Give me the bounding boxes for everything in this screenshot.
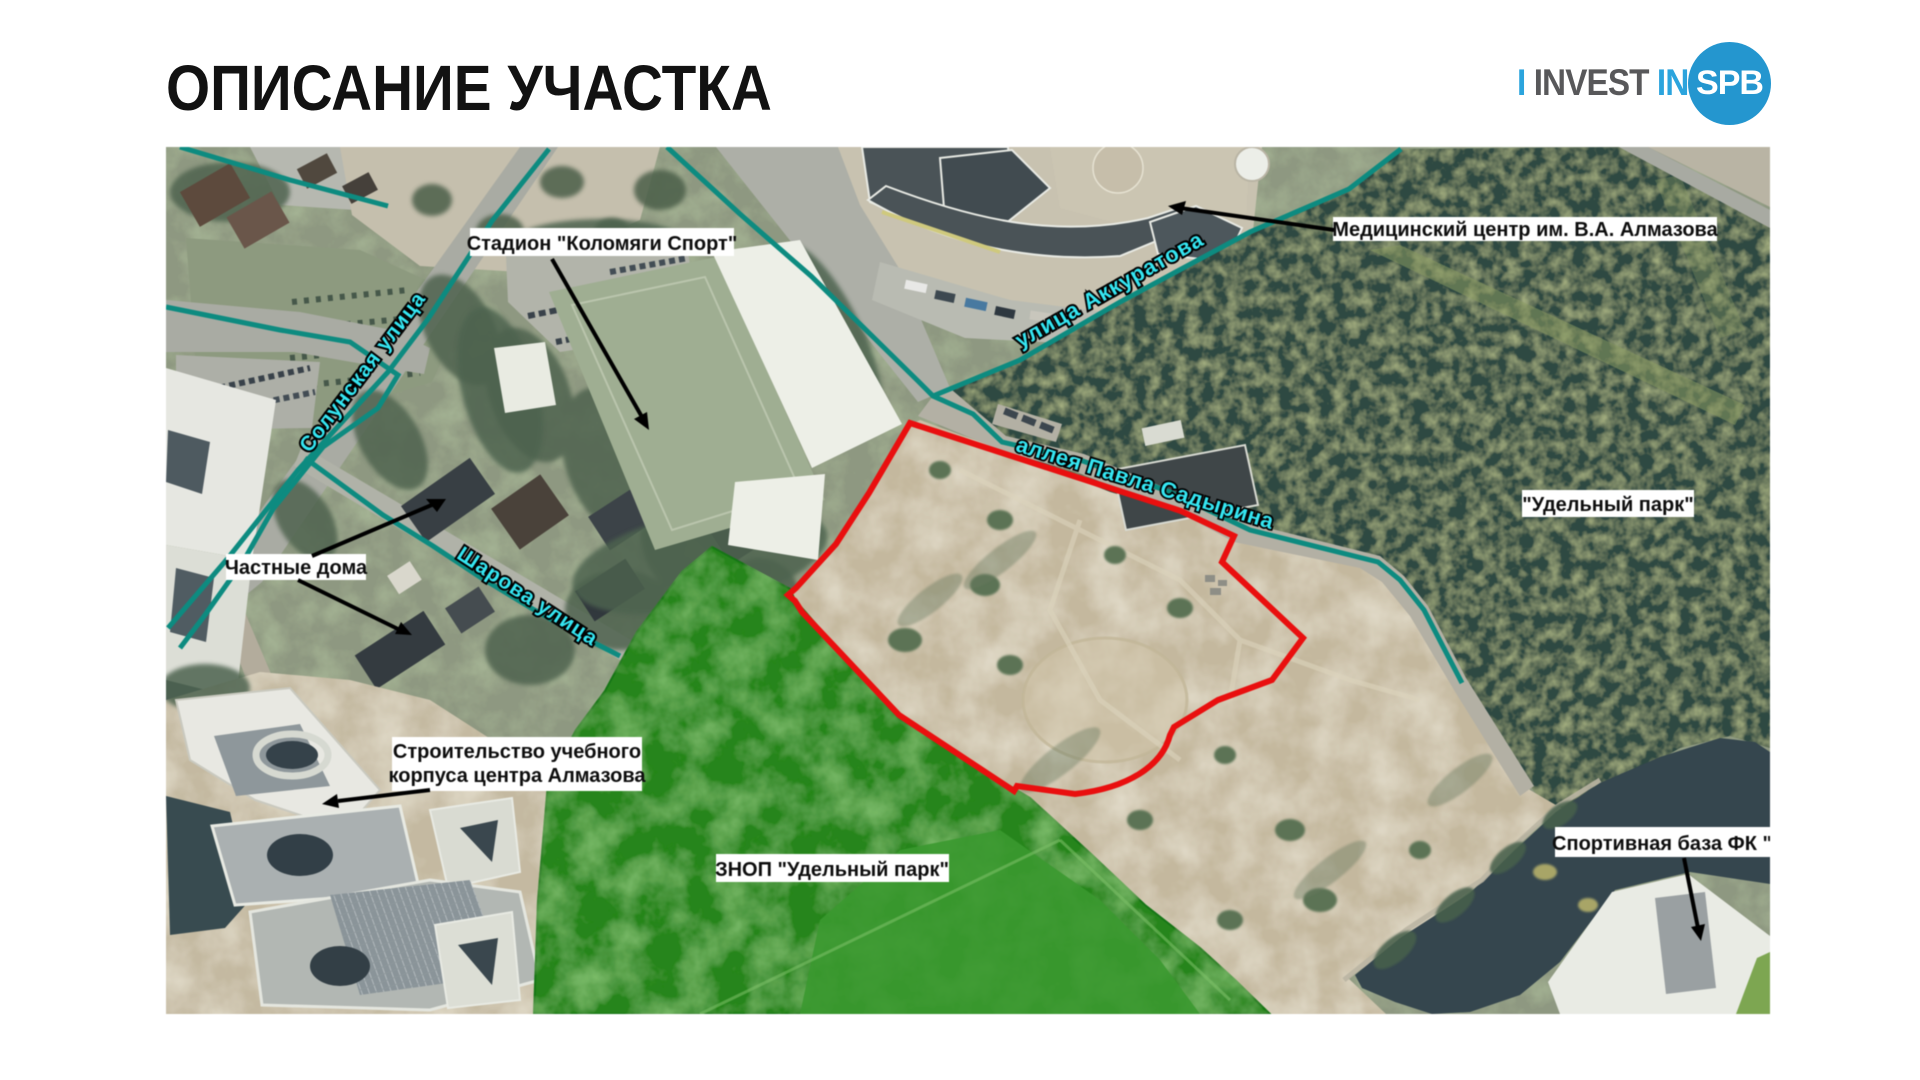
svg-text:ЗНОП "Удельный парк": ЗНОП "Удельный парк" (715, 859, 949, 881)
svg-text:Медицинский центр им. В.А. Алм: Медицинский центр им. В.А. Алмазова (1332, 219, 1718, 241)
svg-text:Строительство учебного: Строительство учебного (393, 741, 641, 763)
svg-text:Частные дома: Частные дома (225, 557, 368, 579)
svg-text:корпуса центра Алмазова: корпуса центра Алмазова (389, 765, 647, 787)
svg-text:"Удельный парк": "Удельный парк" (1522, 494, 1693, 516)
svg-text:Спортивная база ФК ": Спортивная база ФК " (1552, 833, 1770, 855)
svg-text:Стадион "Коломяги Спорт": Стадион "Коломяги Спорт" (467, 233, 738, 255)
